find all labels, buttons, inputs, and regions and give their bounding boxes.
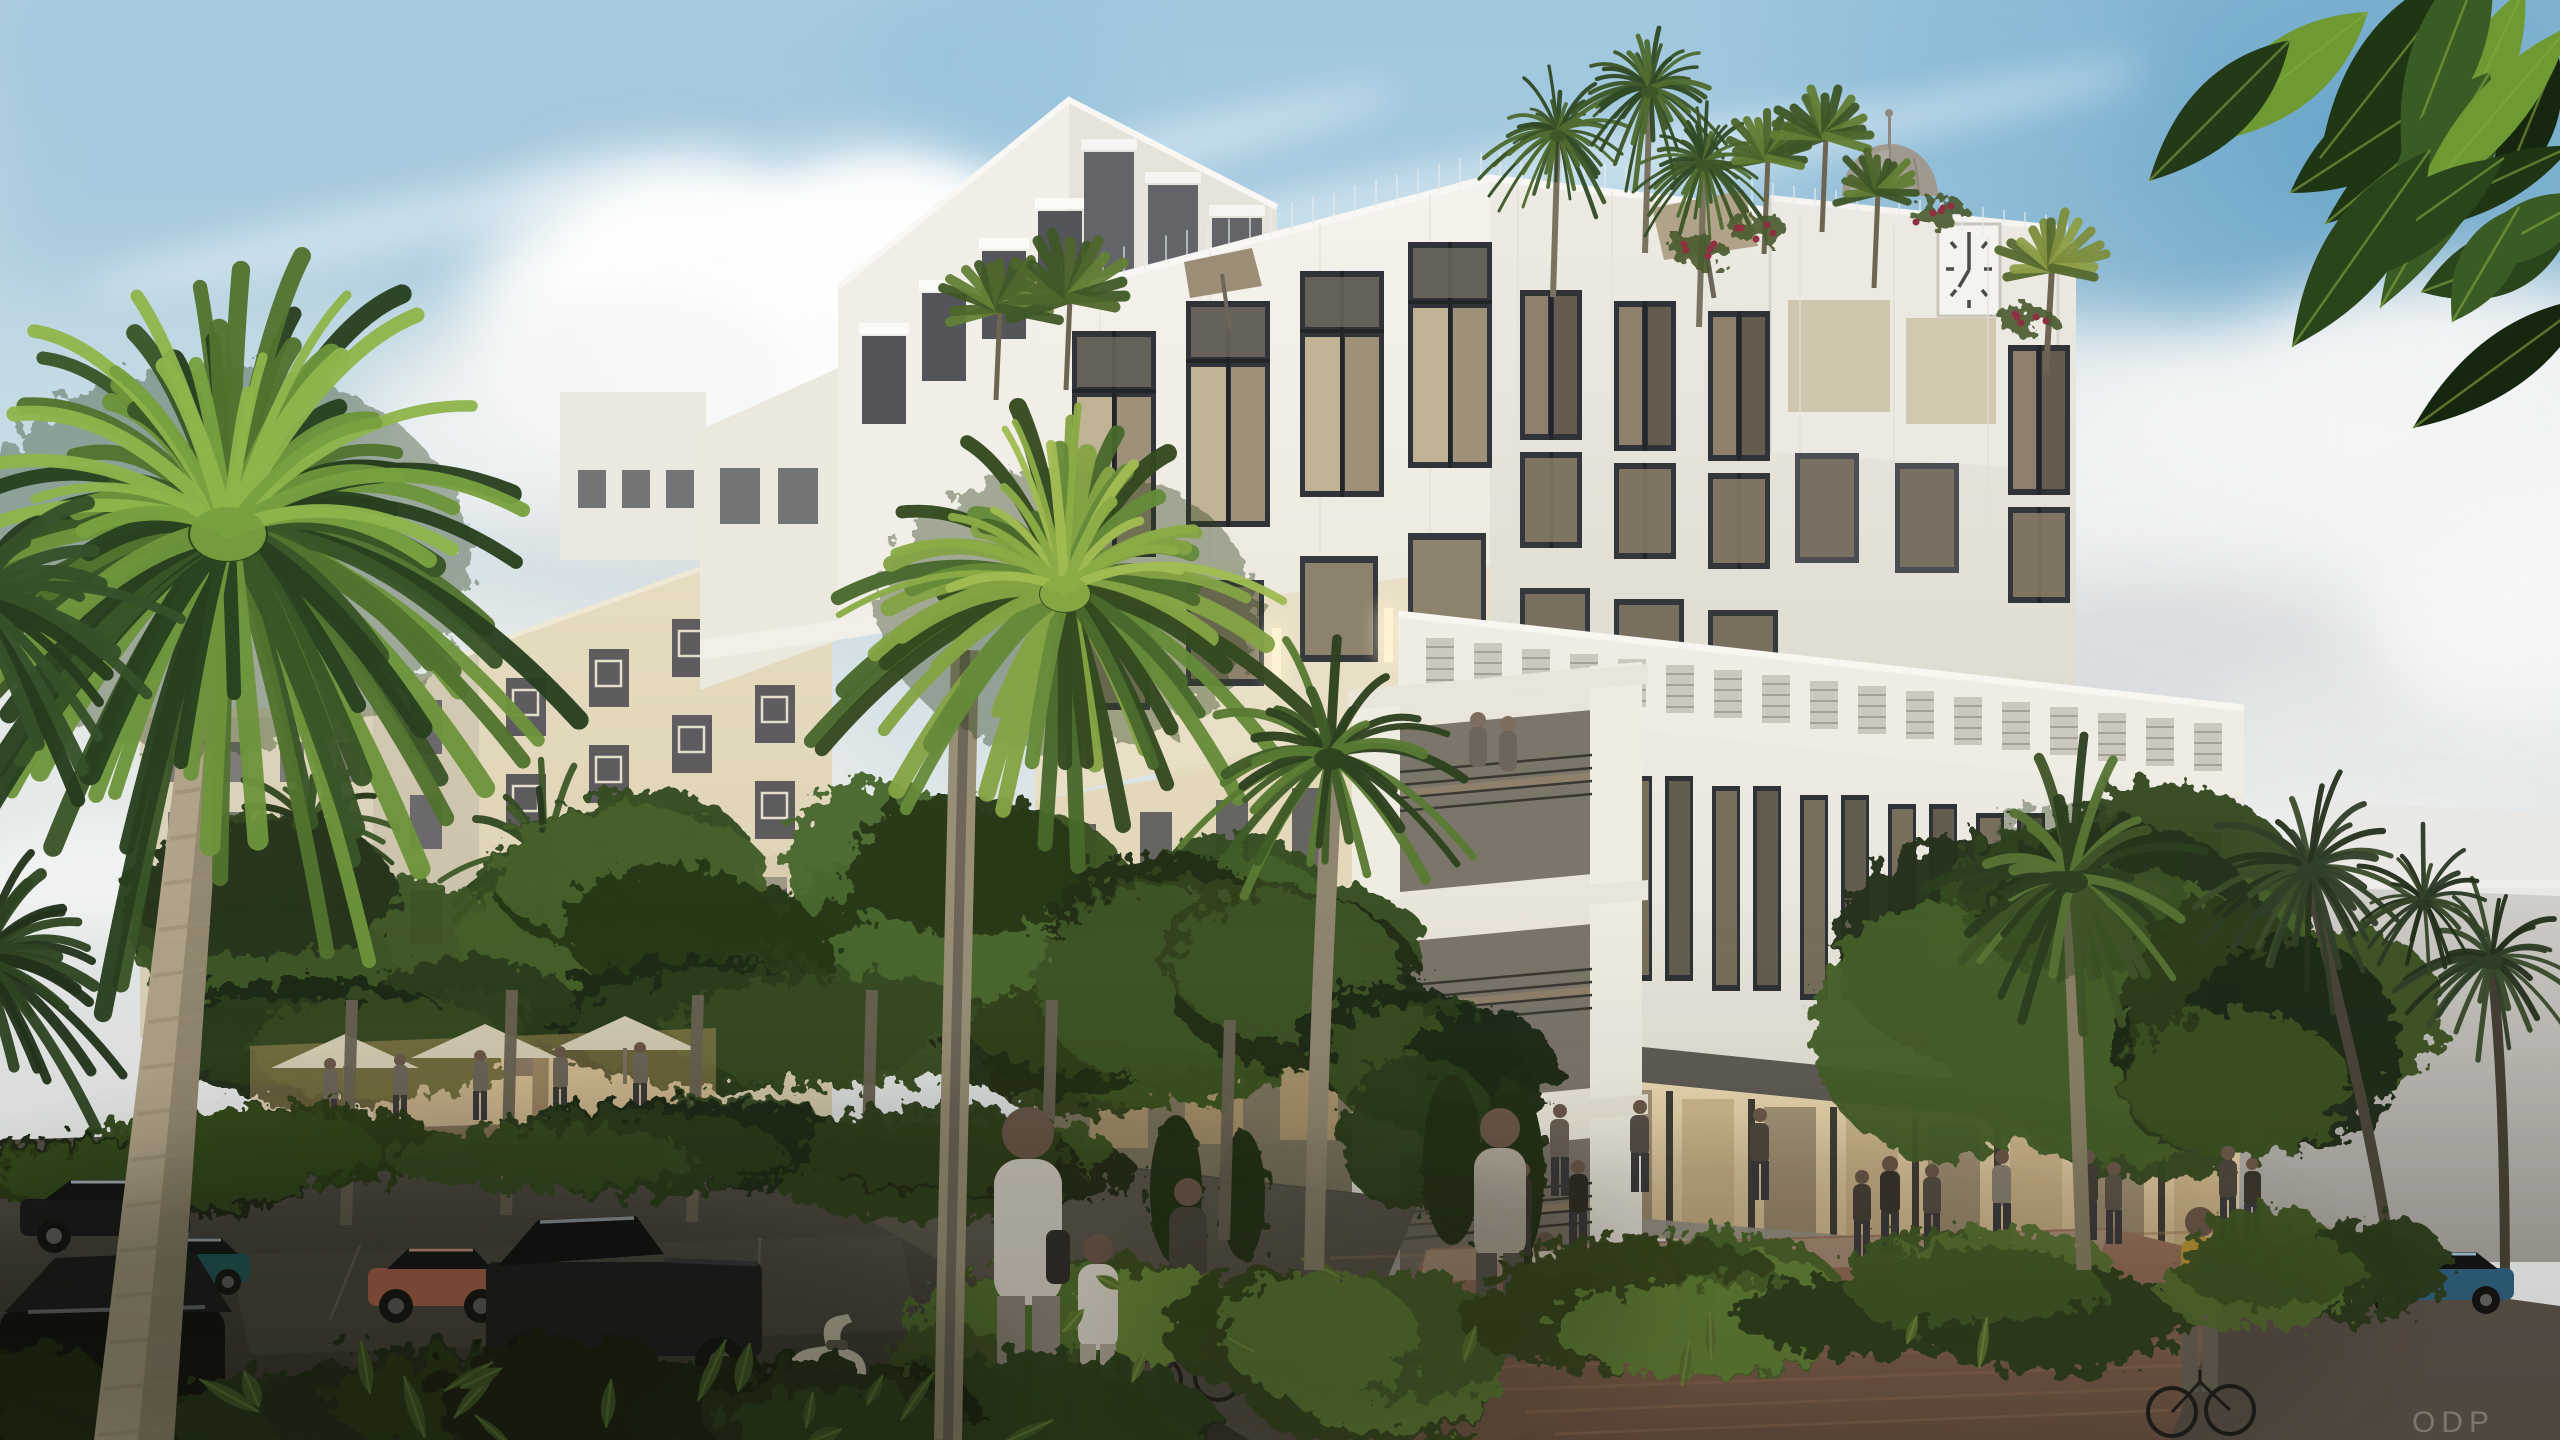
svg-text:ODP: ODP	[2412, 1406, 2495, 1439]
